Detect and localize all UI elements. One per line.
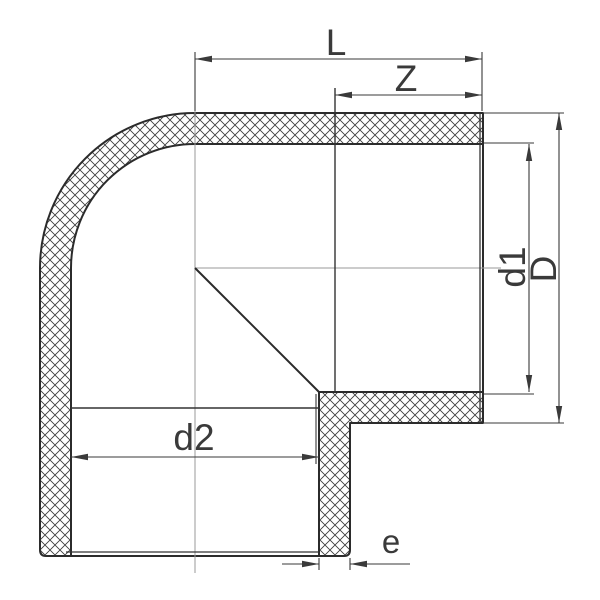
arrowhead-up bbox=[556, 113, 562, 130]
label-bore-diameter: d2 bbox=[173, 417, 214, 458]
label-outer-diameter: D bbox=[523, 256, 564, 283]
dimension-socket-depth: Z bbox=[335, 58, 482, 99]
arrowhead-right bbox=[302, 561, 319, 567]
arrowhead-left bbox=[71, 454, 88, 460]
technical-drawing-canvas: L Z d1 D bbox=[0, 0, 600, 600]
label-wall-thickness: e bbox=[382, 523, 400, 560]
arrowhead-left bbox=[350, 561, 367, 567]
arrowhead-left bbox=[335, 92, 352, 98]
arrowhead-down bbox=[526, 375, 532, 392]
label-socket-depth: Z bbox=[395, 58, 418, 99]
dimension-overall-length: L bbox=[195, 22, 482, 111]
arrowhead-left bbox=[195, 56, 212, 62]
arrowhead-up bbox=[526, 144, 532, 161]
label-overall-length: L bbox=[326, 22, 347, 63]
elbow-body-section bbox=[40, 52, 501, 573]
miter-line bbox=[195, 268, 319, 392]
arrowhead-down bbox=[556, 406, 562, 423]
arrowhead-right bbox=[465, 56, 482, 62]
arrowhead-right bbox=[465, 92, 482, 98]
elbow-fitting-section-drawing: L Z d1 D bbox=[0, 0, 600, 600]
